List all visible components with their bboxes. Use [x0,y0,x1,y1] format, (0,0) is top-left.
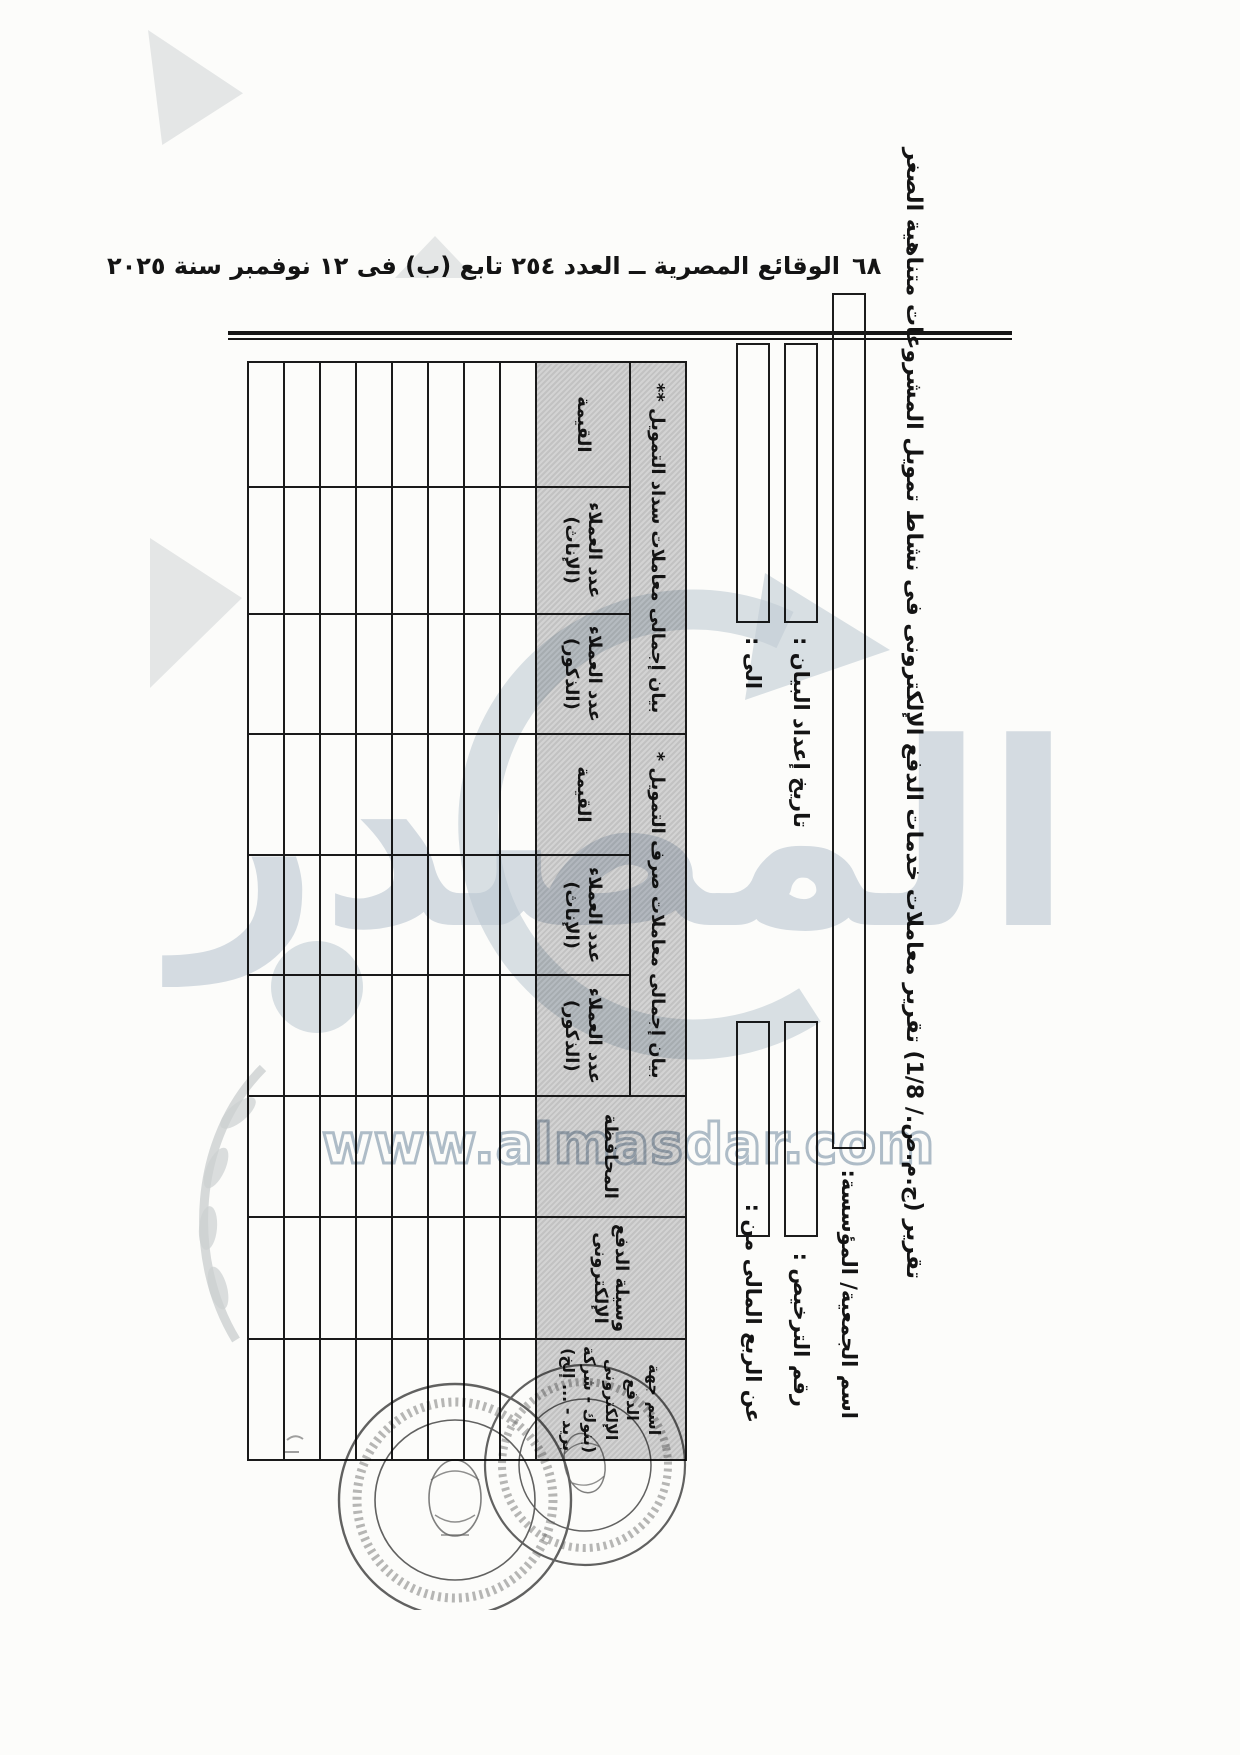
empty-cell [500,855,536,976]
license-date-row: رقم الترخيص : تاريخ إعداد البيان : [777,325,825,1465]
disburse-males-header: عدد العملاء (الذكور) [536,975,630,1096]
license-box [784,1021,818,1237]
empty-cell [464,1217,500,1340]
empty-cell [320,1096,356,1217]
repay-females-header: عدد العملاء (الإناث) [536,487,630,614]
empty-cell [500,1217,536,1340]
empty-cell [500,614,536,735]
empty-cell [248,362,284,487]
quarter-from-box [736,1021,770,1237]
empty-cell [428,1217,464,1340]
empty-cell [248,1339,284,1460]
empty-cell [464,855,500,976]
table-row [284,362,320,1460]
empty-cell [500,1096,536,1217]
empty-cell [356,362,392,487]
empty-cell [428,734,464,855]
table-row [428,362,464,1460]
empty-cell [392,855,428,976]
org-name-label: اسم الجمعية/ المؤسسة: [837,1169,861,1419]
empty-cell [392,734,428,855]
empty-cell [356,614,392,735]
empty-cell [248,1217,284,1340]
empty-cell [320,975,356,1096]
empty-cell [284,734,320,855]
empty-cell [392,1096,428,1217]
empty-cell [356,487,392,614]
empty-cell [356,1217,392,1340]
provider-header: اسم جهة الدفع الإلكترونى (بنوك - شركة بر… [536,1339,686,1460]
empty-cell [464,1096,500,1217]
quarter-to-box [736,343,770,623]
empty-cell [428,975,464,1096]
empty-cell [320,855,356,976]
triangle-decor-icon [148,30,243,145]
empty-cell [284,1096,320,1217]
quarter-to-label: الى : [741,637,765,689]
license-label: رقم الترخيص : [789,1237,813,1407]
empty-cell [500,362,536,487]
empty-cell [464,487,500,614]
empty-cell [248,975,284,1096]
empty-cell [392,362,428,487]
empty-cell [320,1339,356,1460]
quarter-from-label: عن الربع المالى من : [741,1237,765,1423]
empty-cell [284,1217,320,1340]
empty-cell [464,1339,500,1460]
table-row [320,362,356,1460]
empty-cell [428,362,464,487]
report-date-label: تاريخ إعداد البيان : [789,637,813,828]
disburse-females-header: عدد العملاء (الإناث) [536,855,630,976]
empty-cell [284,855,320,976]
empty-cell [284,975,320,1096]
table-row [392,362,428,1460]
empty-cell [428,855,464,976]
empty-cell [248,614,284,735]
empty-cell [320,734,356,855]
org-name-row: اسم الجمعية/ المؤسسة: [825,325,873,1465]
empty-cell [428,614,464,735]
page-number: ٦٨ [852,252,881,280]
repay-males-header: عدد العملاء (الذكور) [536,614,630,735]
report-table: اسم جهة الدفع الإلكترونى (بنوك - شركة بر… [247,361,687,1461]
table-row [464,362,500,1460]
rotated-form-sheet: تقرير (ج.م.ص./ 1/8) تقرير معاملات خدمات … [230,325,930,1465]
empty-cell [248,734,284,855]
org-name-box [832,293,866,1149]
empty-cell [392,1339,428,1460]
report-date-box [784,343,818,623]
empty-cell [320,362,356,487]
empty-cell [284,487,320,614]
triangle-decor-icon [150,538,242,688]
empty-cell [428,1096,464,1217]
gazette-page: الوقائع المصرية ــ العدد ٢٥٤ تابع (ب) فى… [0,0,1240,1755]
form-fields: اسم الجمعية/ المؤسسة: رقم الترخيص : تاري… [729,325,873,1465]
empty-cell [500,734,536,855]
repay-value-header: القيمة [536,362,630,487]
empty-cell [392,975,428,1096]
empty-cell [464,362,500,487]
form-title: تقرير (ج.م.ص./ 1/8) تقرير معاملات خدمات … [901,327,926,1279]
empty-cell [428,1339,464,1460]
disburse-group-header: بيان إجمالى معاملات صرف التمويل * [630,734,686,1096]
empty-cell [320,614,356,735]
empty-cell [356,734,392,855]
empty-cell [320,487,356,614]
table-row [248,362,284,1460]
empty-cell [284,614,320,735]
empty-cell [392,1217,428,1340]
empty-cell [428,487,464,614]
quarter-row: عن الربع المالى من : الى : [729,325,777,1465]
empty-cell [248,487,284,614]
empty-cell [248,855,284,976]
empty-cell [356,855,392,976]
empty-cell [284,362,320,487]
empty-cell [356,1096,392,1217]
empty-cell [284,1339,320,1460]
repay-group-header: بيان إجمالى معاملات سداد التمويل ** [630,362,686,734]
empty-cell [500,1339,536,1460]
method-header: وسيلة الدفع الإلكترونى [536,1217,686,1340]
empty-cell [500,975,536,1096]
table-row [500,362,536,1460]
empty-cell [392,614,428,735]
empty-cell [392,487,428,614]
empty-cell [356,975,392,1096]
empty-cell [464,975,500,1096]
empty-cell [248,1096,284,1217]
empty-cell [464,614,500,735]
disburse-value-header: القيمة [536,734,630,855]
running-header: الوقائع المصرية ــ العدد ٢٥٤ تابع (ب) فى… [250,252,840,280]
empty-cell [464,734,500,855]
empty-cell [320,1217,356,1340]
empty-cell [500,487,536,614]
table-row [356,362,392,1460]
governorate-header: المحافظة [536,1096,686,1217]
table-body [248,362,536,1460]
empty-cell [356,1339,392,1460]
